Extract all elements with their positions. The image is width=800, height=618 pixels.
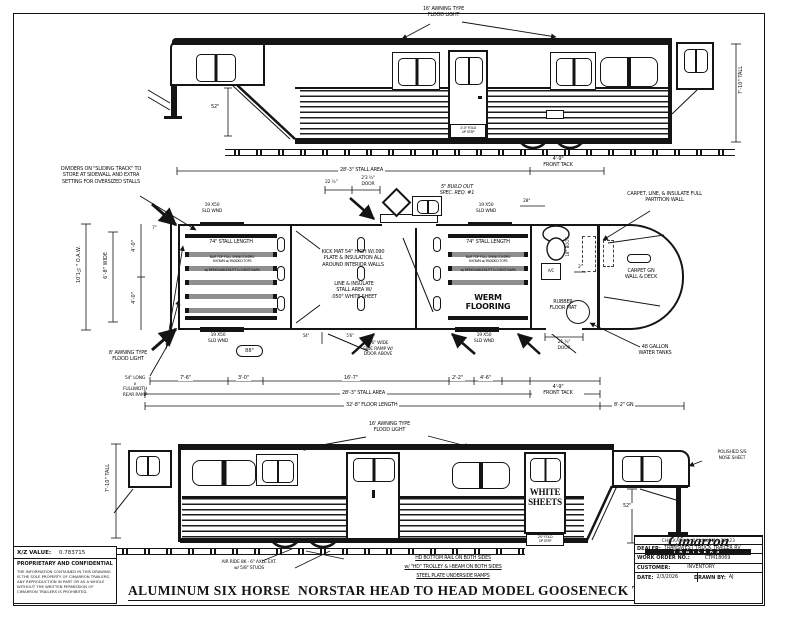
bottom-view-rear-wall	[178, 446, 181, 542]
plan-window-bottom-right	[455, 327, 499, 332]
werm-flooring: WERM FLOORING	[452, 294, 524, 312]
bottom-view-step-label: 2'0" FOLD UP STEP	[526, 535, 564, 544]
stall-head-capsule	[357, 266, 365, 281]
work-order-label: WORK ORDER NO.:	[635, 555, 690, 561]
drawing-title: ALUMINUM SIX HORSE NORSTAR HEAD TO HEAD …	[128, 583, 696, 601]
plan-ac-label: A/C	[541, 268, 561, 273]
bottom-view-window-3	[452, 462, 510, 489]
white-sheets-text: WHITE SHEETS	[524, 487, 566, 508]
top-view-rear-door-window	[684, 49, 708, 73]
plan-partition-wall	[597, 226, 600, 328]
side-ramp-note: 5'6" WIDE SIDE RAMP W/ DOOR ABOVE	[348, 341, 408, 358]
awning8-note: 8' AWNING TYPE FLOOD LIGHT	[88, 350, 168, 363]
air-ride-note: AIR RIDE 8K - 6" AXLE EXT. w/ 5/8" STUDS	[203, 560, 295, 571]
top-view-window-3	[600, 57, 658, 87]
bottom-view-nose-window	[622, 456, 662, 482]
stall-note-b-left: w/ REMOVABLE BUTT & CHEST BARS	[188, 268, 276, 272]
bottom-view-roof	[178, 444, 614, 450]
stall-divider-bar	[185, 308, 277, 313]
xz-label: X/Z VALUE:	[14, 550, 51, 556]
bottom-view-center-door-window	[353, 458, 395, 482]
bottom-view-drop-dim: 52"	[621, 503, 633, 509]
top-view-drop-dim: 52"	[209, 104, 221, 110]
top-view-nose-bottom-line	[170, 84, 237, 86]
rubber-mat-note: RUBBER FLOOR MAT	[534, 299, 592, 312]
date-value: 2/3/2026	[653, 575, 678, 580]
dim-3-0: 3'-0"	[236, 375, 251, 381]
wide-dim: 6'-8" WIDE	[103, 252, 109, 279]
dim-28: 28"	[521, 199, 532, 205]
top-view-axle-box	[546, 110, 564, 119]
top-view-ground-rail	[225, 149, 735, 156]
kick-mat-note: KICK MAT 54" HIGH W/.090 PLATE & INSULAT…	[306, 249, 400, 268]
stall-head-capsule	[277, 237, 285, 252]
proprietary-body: THE INFORMATION CONTAINED IN THIS DRAWIN…	[17, 569, 113, 595]
xz-value-box: X/Z VALUE: 0.783715	[13, 546, 117, 559]
dealer-label: DEALER:	[635, 546, 661, 552]
stall-divider-bar	[448, 280, 528, 285]
work-order-row: WORK ORDER NO.: CTM18069	[635, 553, 762, 563]
work-order-value: CTM18069	[702, 556, 731, 561]
top-view-door-window	[455, 57, 483, 85]
plan-buildout-door-window	[417, 200, 439, 214]
sld-wnd-label-tl: 19 X50 SLD WND	[186, 203, 238, 214]
gooseneck-dashed-box	[603, 240, 614, 267]
plan-boot-label: 18" BOOT	[565, 237, 570, 257]
sld-wnd-label-tr: 19 X50 SLD WND	[460, 203, 512, 214]
top-view-window-1	[398, 58, 436, 86]
plan-window-top-left	[200, 222, 244, 227]
bottom-view-window-1	[192, 460, 256, 486]
stall-wall-bar	[185, 234, 277, 238]
plan-window-bottom-left	[200, 327, 244, 332]
stall-wall-bar	[185, 316, 277, 320]
plan-aisle-wall-left	[290, 226, 292, 328]
top-view-roof	[172, 38, 672, 45]
dim-40-lower: 4'-0"	[131, 292, 137, 304]
stall-area-top-dim: 28'-3" STALL AREA	[338, 167, 385, 173]
hd-note-1: HD BOTTOM RAIL ON BOTH SIDES	[338, 556, 568, 562]
top-view-hitch-foot	[164, 116, 182, 119]
plan-rear-wall-line	[170, 224, 172, 330]
dim-7-6: 7'-6"	[178, 375, 193, 381]
dim-56: 5'6"	[342, 333, 358, 338]
plan-fronttack-door-gap	[546, 327, 582, 334]
dim-54: 54"	[298, 333, 314, 338]
customer-row: CUSTOMER: INVENTORY	[635, 563, 762, 573]
stall-note-a-right: BAR TOP FULL SWING DVDRS SHOWN w/ PADDED…	[450, 255, 526, 264]
dim-7: 7"	[150, 226, 159, 232]
sld-wnd-label-bl: 19 X50 SLD WND	[192, 333, 244, 344]
stall-head-capsule	[433, 237, 441, 252]
buildout-label: 5" BUILD OUT SPEC. REQ. #1	[426, 184, 488, 197]
floor-length-dim: 32'-8" FLOOR LENGTH	[344, 402, 399, 408]
sld-wnd-label-br: 19 X50 SLD WND	[458, 333, 510, 344]
dividers-note: DIVIDERS ON "SLIDING TRACK" TO STORE AT …	[40, 166, 162, 185]
stall-wall-bar	[448, 234, 528, 238]
stall-head-capsule	[433, 266, 441, 281]
xz-value: 0.783715	[51, 550, 85, 556]
stall-note-a-left: BAR TOP FULL SWING DVDRS SHOWN w/ PADDED…	[188, 255, 276, 264]
dim-2: 2"	[576, 265, 585, 271]
hd-note-3: STEEL PLATE UNDERSIDE RAMPS	[338, 574, 568, 580]
customer-value: INVENTORY	[684, 565, 715, 570]
oaw-dim: 10'1½" O.A.W.	[76, 246, 82, 283]
dim-40-upper: 4'-0"	[131, 240, 137, 252]
brand-city-row: CHICKASHA, OKLAHOMA 73023	[635, 536, 762, 544]
plan-window-top-right	[468, 222, 512, 227]
top-view-step-label: 2'-0" FOLD UP STEP	[450, 126, 486, 135]
top-view-nose-window	[196, 54, 236, 82]
nose-sheet-label: POLISHED S/S NOSE SHEET	[700, 450, 764, 461]
stall-length-left: 74" STALL LENGTH	[192, 239, 270, 245]
stall-divider-bar	[185, 294, 277, 299]
stall-wall-bar	[448, 316, 528, 320]
door-dim-top: 2'3 ¾" DOOR	[352, 176, 384, 187]
front-tack-bottom-dim: 4'-9" FRONT TACK	[532, 384, 584, 397]
dealer-row: DEALER: TRANSWEST TRUCK TRAILER RV	[635, 544, 762, 554]
stall-length-right: 74" STALL LENGTH	[450, 239, 526, 245]
stall-head-capsule	[277, 266, 285, 281]
brand-city: CHICKASHA, OKLAHOMA 73023	[662, 538, 736, 543]
dim-16-7: 16'-7"	[342, 375, 360, 381]
gn-dim: 8'-2" GN	[612, 402, 635, 408]
stall-area-bottom-dim: 28'-3" STALL AREA	[340, 390, 387, 396]
top-view-door-handle	[478, 96, 482, 99]
carpet-partition-note: CARPET, LINE, & INSULATE FULL PARTITION …	[592, 191, 737, 204]
stall-head-capsule	[277, 296, 285, 311]
bottom-view-rear-door-window	[136, 456, 160, 476]
proprietary-heading: PROPRIETARY AND CONFIDENTIAL	[17, 561, 113, 567]
dim-2-2: 2'-2"	[450, 375, 465, 381]
dim-4-6: 4'-6"	[478, 375, 493, 381]
top-view-tall-dim: 7'-10" TALL	[738, 66, 744, 94]
rear-ramp-note: 54" LONG x FULLWIDTH REAR RAMP	[108, 376, 162, 399]
top-view-floor-band	[295, 138, 672, 144]
hd-note-2: w/ "HD" TROLLEY & I-BEAM ON BOTH SIDES	[338, 565, 568, 571]
date-label: DATE:	[635, 575, 653, 581]
bottom-view-window-2	[262, 460, 294, 483]
date-divider	[697, 573, 698, 582]
line-insulate-note: LINE & INSULATE STALL AREA W/ .050" WHIT…	[320, 281, 388, 300]
stall-divider-bar	[185, 280, 277, 285]
dim-22half: 22 ½"	[323, 180, 340, 186]
front-tack-top-dim: 4'-9" FRONT TACK	[525, 156, 591, 169]
drawn-by-value: AJ	[726, 575, 734, 580]
bottom-view-ground-rail	[113, 548, 525, 555]
date-row: DATE: 2/3/2026 DRAWN BY: AJ	[635, 572, 762, 582]
bottom-view-tall-dim: 7'-10" TALL	[105, 464, 111, 492]
bottom-view-whitesheets-window	[530, 458, 561, 482]
dim-88-pill: 88"	[236, 345, 263, 357]
plan-fronttack-wall	[530, 226, 532, 328]
bottom-view-flood-light-label: 16' AWNING TYPE FLOOD LIGHT	[342, 421, 437, 434]
door-dim-right: 21 ¾" DOOR	[546, 340, 582, 351]
top-view-hitch-post	[171, 86, 177, 117]
proprietary-box: PROPRIETARY AND CONFIDENTIAL THE INFORMA…	[13, 559, 117, 604]
bottom-view-center-door-handle	[372, 490, 375, 498]
title-block: Cimarron TRAILERS CHICKASHA, OKLAHOMA 73…	[634, 535, 763, 604]
stall-note-b-right: w/ REMOVABLE BUTT & CHEST BARS	[450, 268, 526, 272]
dealer-value: TRANSWEST TRUCK TRAILER RV	[661, 546, 741, 551]
carpet-gn-note: CARPET GN WALL & DECK	[610, 268, 672, 281]
water-tanks-note: 48 GALLON WATER TANKS	[620, 344, 690, 357]
top-view-flood-light-label: 16' AWNING TYPE FLOOD LIGHT	[396, 6, 491, 19]
plan-aisle-wall-right	[415, 226, 417, 328]
dim-88-text: 88"	[245, 348, 254, 354]
blueprint-canvas: 2'-0" FOLD UP STEP 16' AWNING TYPE FLOOD…	[0, 0, 800, 618]
top-view-window-2	[556, 58, 592, 86]
gooseneck-counter	[627, 254, 651, 263]
bottom-view-jack-post	[676, 488, 681, 533]
customer-label: CUSTOMER:	[635, 565, 670, 571]
stall-head-capsule	[433, 296, 441, 311]
top-view-rear-wall	[668, 44, 672, 144]
